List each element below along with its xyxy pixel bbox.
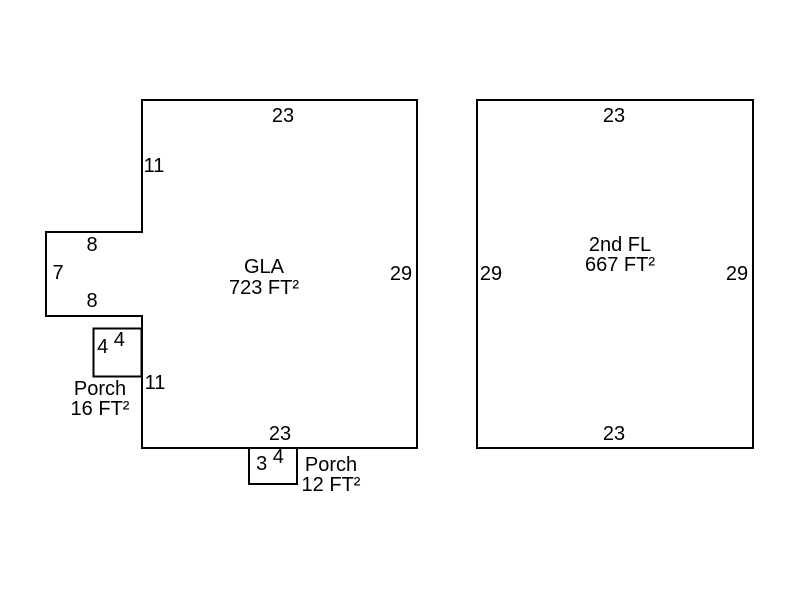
floor1-area-size: 723 FT²: [229, 278, 299, 299]
floor2-area-label: 2nd FL 667 FT²: [585, 235, 655, 275]
floor1-dim-left-upper: 11: [144, 156, 165, 176]
floor1-dim-bottom: 23: [269, 424, 291, 444]
floor1-dim-right: 29: [390, 264, 412, 284]
floor2-dim-top: 23: [603, 106, 625, 126]
porch-side-dims: 4 4: [97, 337, 125, 357]
floor1-area-name: GLA: [229, 257, 299, 278]
floor1-dim-bump-bottom: 8: [86, 291, 97, 311]
floor1-dim-left-lower: 11: [145, 373, 166, 393]
floor1-dim-bump-left: 7: [52, 263, 63, 283]
floor2-dim-right: 29: [726, 264, 748, 284]
sketch-canvas: 23 11 8 7 8 29 11 23 GLA 723 FT² 4 4 Por…: [0, 0, 800, 600]
floorplan-drawing: [0, 0, 800, 600]
floor1-dim-bump-top: 8: [86, 235, 97, 255]
floor2-dim-bottom: 23: [603, 424, 625, 444]
floor1-area-label: GLA 723 FT²: [229, 257, 299, 299]
floor1-dim-top: 23: [272, 106, 294, 126]
porch-front-dim-b: 4: [273, 447, 284, 467]
porch-side-name: Porch: [71, 379, 130, 399]
porch-side-size: 16 FT²: [71, 399, 130, 419]
porch-front-dims: 3 4: [256, 454, 284, 474]
porch-front-size: 12 FT²: [302, 475, 361, 495]
floor2-area-size: 667 FT²: [585, 255, 655, 275]
porch-front-name: Porch: [302, 455, 361, 475]
floor2-dim-left: 29: [480, 264, 502, 284]
porch-side-dim-a: 4: [97, 337, 108, 357]
porch-front-label: Porch 12 FT²: [302, 455, 361, 495]
porch-side-dim-b: 4: [114, 330, 125, 350]
porch-side-label: Porch 16 FT²: [71, 379, 130, 419]
porch-front-dim-a: 3: [256, 454, 267, 474]
floor2-area-name: 2nd FL: [585, 235, 655, 255]
